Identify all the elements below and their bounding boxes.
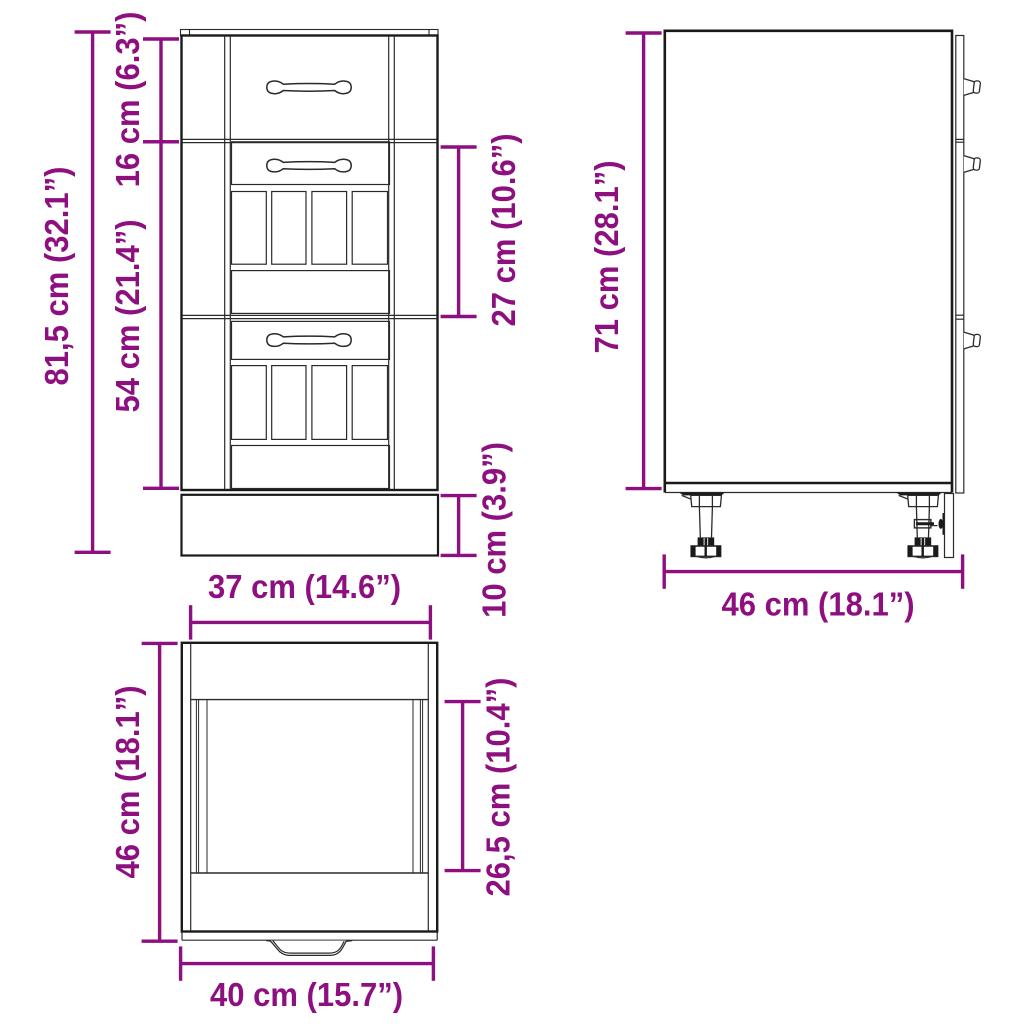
svg-text:10 cm (3.9”): 10 cm (3.9”) — [475, 442, 512, 618]
svg-text:26,5 cm (10.4”): 26,5 cm (10.4”) — [479, 678, 516, 897]
svg-text:71 cm (28.1”): 71 cm (28.1”) — [588, 160, 625, 353]
svg-text:27 cm (10.6”): 27 cm (10.6”) — [485, 133, 522, 326]
svg-text:37 cm (14.6”): 37 cm (14.6”) — [208, 568, 401, 605]
svg-text:46 cm (18.1”): 46 cm (18.1”) — [721, 585, 914, 622]
svg-text:16 cm (6.3”): 16 cm (6.3”) — [109, 12, 146, 188]
svg-text:46 cm (18.1”): 46 cm (18.1”) — [109, 685, 146, 878]
svg-text:81,5 cm (32.1”): 81,5 cm (32.1”) — [38, 167, 75, 386]
svg-text:54 cm (21.4”): 54 cm (21.4”) — [109, 219, 146, 412]
svg-text:40 cm (15.7”): 40 cm (15.7”) — [210, 976, 403, 1013]
